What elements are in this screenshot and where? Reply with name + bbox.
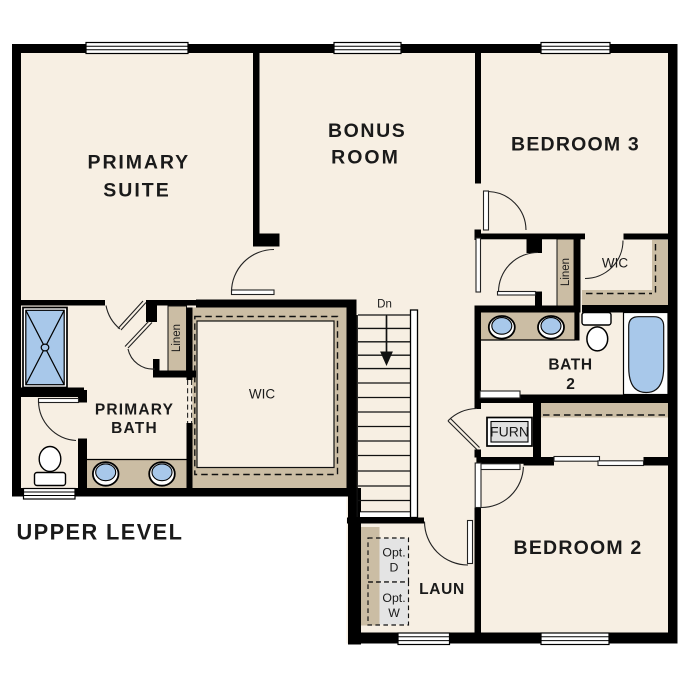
svg-text:PRIMARY: PRIMARY — [88, 152, 191, 174]
svg-text:Opt.: Opt. — [382, 591, 405, 605]
svg-text:BATH: BATH — [548, 357, 592, 374]
svg-text:Opt.: Opt. — [382, 546, 405, 560]
svg-text:BATH: BATH — [111, 420, 158, 437]
svg-text:Linen: Linen — [560, 258, 572, 286]
svg-text:BONUS: BONUS — [328, 120, 406, 142]
svg-text:BEDROOM 2: BEDROOM 2 — [514, 537, 643, 559]
svg-text:2: 2 — [566, 376, 575, 393]
svg-text:LAUN: LAUN — [419, 581, 465, 598]
svg-text:W: W — [388, 606, 400, 620]
svg-text:Linen: Linen — [171, 324, 183, 352]
svg-text:D: D — [390, 561, 399, 575]
svg-text:UPPER LEVEL: UPPER LEVEL — [17, 520, 184, 545]
svg-text:FURN: FURN — [490, 424, 529, 440]
svg-text:WIC: WIC — [249, 387, 275, 402]
svg-text:BEDROOM 3: BEDROOM 3 — [511, 134, 640, 156]
svg-text:Dn: Dn — [377, 299, 392, 311]
svg-text:WIC: WIC — [602, 256, 628, 271]
svg-text:PRIMARY: PRIMARY — [95, 402, 174, 419]
svg-text:SUITE: SUITE — [103, 180, 170, 202]
svg-text:ROOM: ROOM — [331, 147, 400, 169]
